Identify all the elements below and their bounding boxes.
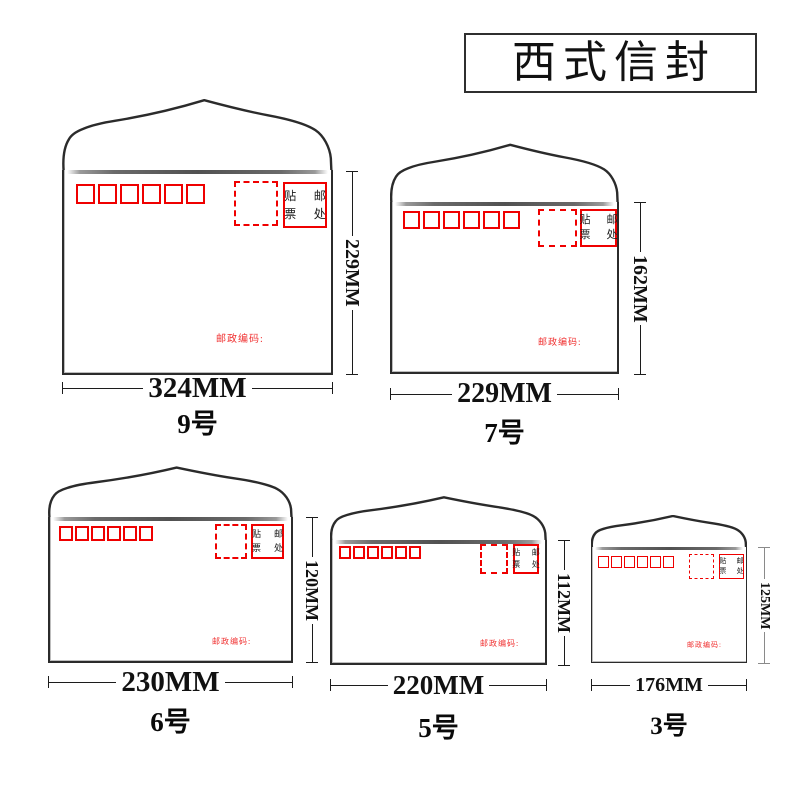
dimension-line (708, 685, 746, 686)
stamp-label-box: 贴 邮 票 处 (580, 209, 617, 247)
size-label: 9号 (62, 411, 333, 438)
stamp-area-box (480, 544, 508, 574)
envelope-flap (330, 496, 547, 541)
height-dimension: 125MM (757, 547, 771, 664)
postal-code-box (120, 184, 139, 204)
postal-code-box (624, 556, 635, 568)
height-value: 229MM (342, 236, 362, 310)
dimension-tick (292, 676, 293, 688)
dimension-line (312, 518, 313, 557)
postal-code-box (443, 211, 460, 229)
postal-code-box (650, 556, 661, 568)
height-value: 120MM (303, 557, 321, 624)
envelope-6: 贴 邮 票 处 邮政编码: 230MM 120MM 6号 (48, 466, 293, 746)
width-dimension: 324MM (62, 381, 333, 395)
width-value: 176MM (630, 676, 708, 694)
stamp-label-row2: 票 处 (507, 561, 544, 569)
dimension-line (331, 685, 388, 686)
postal-code-box (91, 526, 105, 541)
fold-shadow (595, 547, 743, 550)
envelope-body: 贴 邮 票 处 邮政编码: (591, 547, 747, 663)
postal-code-caption: 邮政编码: (480, 638, 519, 649)
postal-code-box (353, 546, 365, 559)
stamp-area-box (689, 554, 714, 579)
postal-code-box (142, 184, 161, 204)
envelope-5: 贴 邮 票 处 邮政编码: 220MM 112MM 5号 (330, 496, 547, 776)
postal-code-caption: 邮政编码: (212, 636, 251, 647)
envelope-body: 贴 邮 票 处 邮政编码: (48, 517, 293, 663)
stamp-label-row2: 票 处 (715, 568, 748, 575)
dimension-line (312, 624, 313, 663)
height-dimension: 120MM (305, 517, 319, 663)
stamp-area-box (215, 524, 247, 559)
postal-code-box (98, 184, 117, 204)
stamp-label-row2: 票 处 (573, 230, 624, 241)
width-value: 220MM (388, 673, 489, 697)
dimension-line (489, 685, 546, 686)
dimension-line (49, 682, 116, 683)
postal-code-box (367, 546, 379, 559)
envelope-flap (62, 98, 333, 171)
envelope-flap (48, 466, 293, 518)
height-value: 112MM (555, 570, 573, 636)
size-label: 6号 (48, 709, 293, 736)
size-label: 7号 (390, 420, 619, 447)
dimension-line (225, 682, 292, 683)
envelope-9: 贴 邮 票 处 邮政编码: 324MM 229MM 9号 (62, 98, 333, 438)
stamp-area-box (234, 181, 278, 226)
dimension-tick (558, 665, 570, 666)
envelope-body: 贴 邮 票 处 邮政编码: (330, 540, 547, 665)
dimension-tick (332, 382, 333, 394)
dimension-line (764, 632, 765, 663)
dimension-line (592, 685, 630, 686)
height-dimension: 162MM (633, 202, 647, 375)
dimension-line (352, 172, 353, 236)
stamp-area-box (538, 209, 577, 247)
dimension-tick (618, 388, 619, 400)
fold-shadow (395, 202, 614, 206)
postal-code-caption: 邮政编码: (538, 335, 582, 348)
postal-code-box (637, 556, 648, 568)
envelope-body: 贴 邮 票 处 邮政编码: (62, 170, 333, 375)
postal-code-box (598, 556, 609, 568)
envelope-7: 贴 邮 票 处 邮政编码: 229MM 162MM 7号 (390, 143, 619, 483)
title-box: 西式信封 (464, 33, 757, 93)
postal-code-box (395, 546, 407, 559)
postal-code-box (123, 526, 137, 541)
width-dimension: 230MM (48, 675, 293, 689)
stamp-label-row1: 贴 邮 (277, 190, 333, 202)
dimension-tick (746, 679, 747, 691)
width-dimension: 229MM (390, 387, 619, 401)
postal-code-boxes (59, 526, 153, 541)
postal-code-boxes (403, 211, 520, 229)
postal-code-boxes (598, 556, 674, 568)
height-dimension: 112MM (557, 540, 571, 666)
stamp-label-row1: 贴 邮 (715, 558, 748, 565)
dimension-line (252, 388, 332, 389)
stamp-label-box: 贴 邮 票 处 (513, 544, 539, 574)
dimension-line (391, 394, 452, 395)
size-label: 5号 (330, 715, 547, 742)
postal-code-box (59, 526, 73, 541)
dimension-tick (634, 374, 646, 375)
postal-code-box (483, 211, 500, 229)
envelope-flap (390, 143, 619, 203)
width-dimension: 220MM (330, 678, 547, 692)
postal-code-box (139, 526, 153, 541)
postal-code-box (381, 546, 393, 559)
stamp-label-row1: 贴 邮 (247, 530, 289, 539)
width-dimension: 176MM (591, 678, 747, 692)
postal-code-box (611, 556, 622, 568)
stamp-label-row2: 票 处 (247, 544, 289, 553)
postal-code-box (75, 526, 89, 541)
stamp-label-box: 贴 邮 票 处 (719, 554, 744, 579)
dimension-tick (546, 679, 547, 691)
height-value: 162MM (630, 252, 650, 326)
dimension-line (764, 548, 765, 579)
dimension-line (352, 310, 353, 374)
stamp-label-row1: 贴 邮 (573, 215, 624, 226)
dimension-line (63, 388, 143, 389)
fold-shadow (67, 170, 328, 174)
width-value: 230MM (116, 669, 224, 695)
dimension-line (557, 394, 618, 395)
postal-code-box (463, 211, 480, 229)
envelope-flap (591, 515, 747, 548)
postal-code-box (186, 184, 205, 204)
postal-code-boxes (76, 184, 205, 204)
envelope-body: 贴 邮 票 处 邮政编码: (390, 202, 619, 374)
fold-shadow (335, 540, 542, 544)
postal-code-caption: 邮政编码: (216, 330, 264, 345)
stamp-label-box: 贴 邮 票 处 (283, 182, 327, 228)
dimension-line (564, 636, 565, 665)
stamp-label-row2: 票 处 (277, 208, 333, 220)
dimension-line (640, 325, 641, 374)
dimension-line (640, 203, 641, 252)
postal-code-box (663, 556, 674, 568)
dimension-line (564, 541, 565, 570)
postal-code-box (423, 211, 440, 229)
page-canvas: 西式信封 贴 邮 票 处 邮政编码: 324MM 229MM 9号 (0, 0, 800, 800)
dimension-tick (306, 662, 318, 663)
postal-code-box (403, 211, 420, 229)
dimension-tick (758, 663, 770, 664)
width-value: 324MM (143, 375, 251, 401)
postal-code-box (339, 546, 351, 559)
height-value: 125MM (757, 579, 771, 632)
postal-code-box (76, 184, 95, 204)
envelope-3: 贴 邮 票 处 邮政编码: 176MM 125MM 3号 (591, 515, 747, 795)
stamp-label-box: 贴 邮 票 处 (251, 524, 284, 559)
fold-shadow (53, 517, 288, 521)
postal-code-box (409, 546, 421, 559)
dimension-tick (346, 374, 358, 375)
postal-code-boxes (339, 546, 421, 559)
postal-code-box (164, 184, 183, 204)
page-title: 西式信封 (505, 41, 716, 85)
height-dimension: 229MM (345, 171, 359, 375)
postal-code-box (107, 526, 121, 541)
width-value: 229MM (452, 381, 557, 406)
postal-code-caption: 邮政编码: (687, 640, 722, 650)
size-label: 3号 (591, 714, 747, 739)
stamp-label-row1: 贴 邮 (507, 549, 544, 557)
postal-code-box (503, 211, 520, 229)
